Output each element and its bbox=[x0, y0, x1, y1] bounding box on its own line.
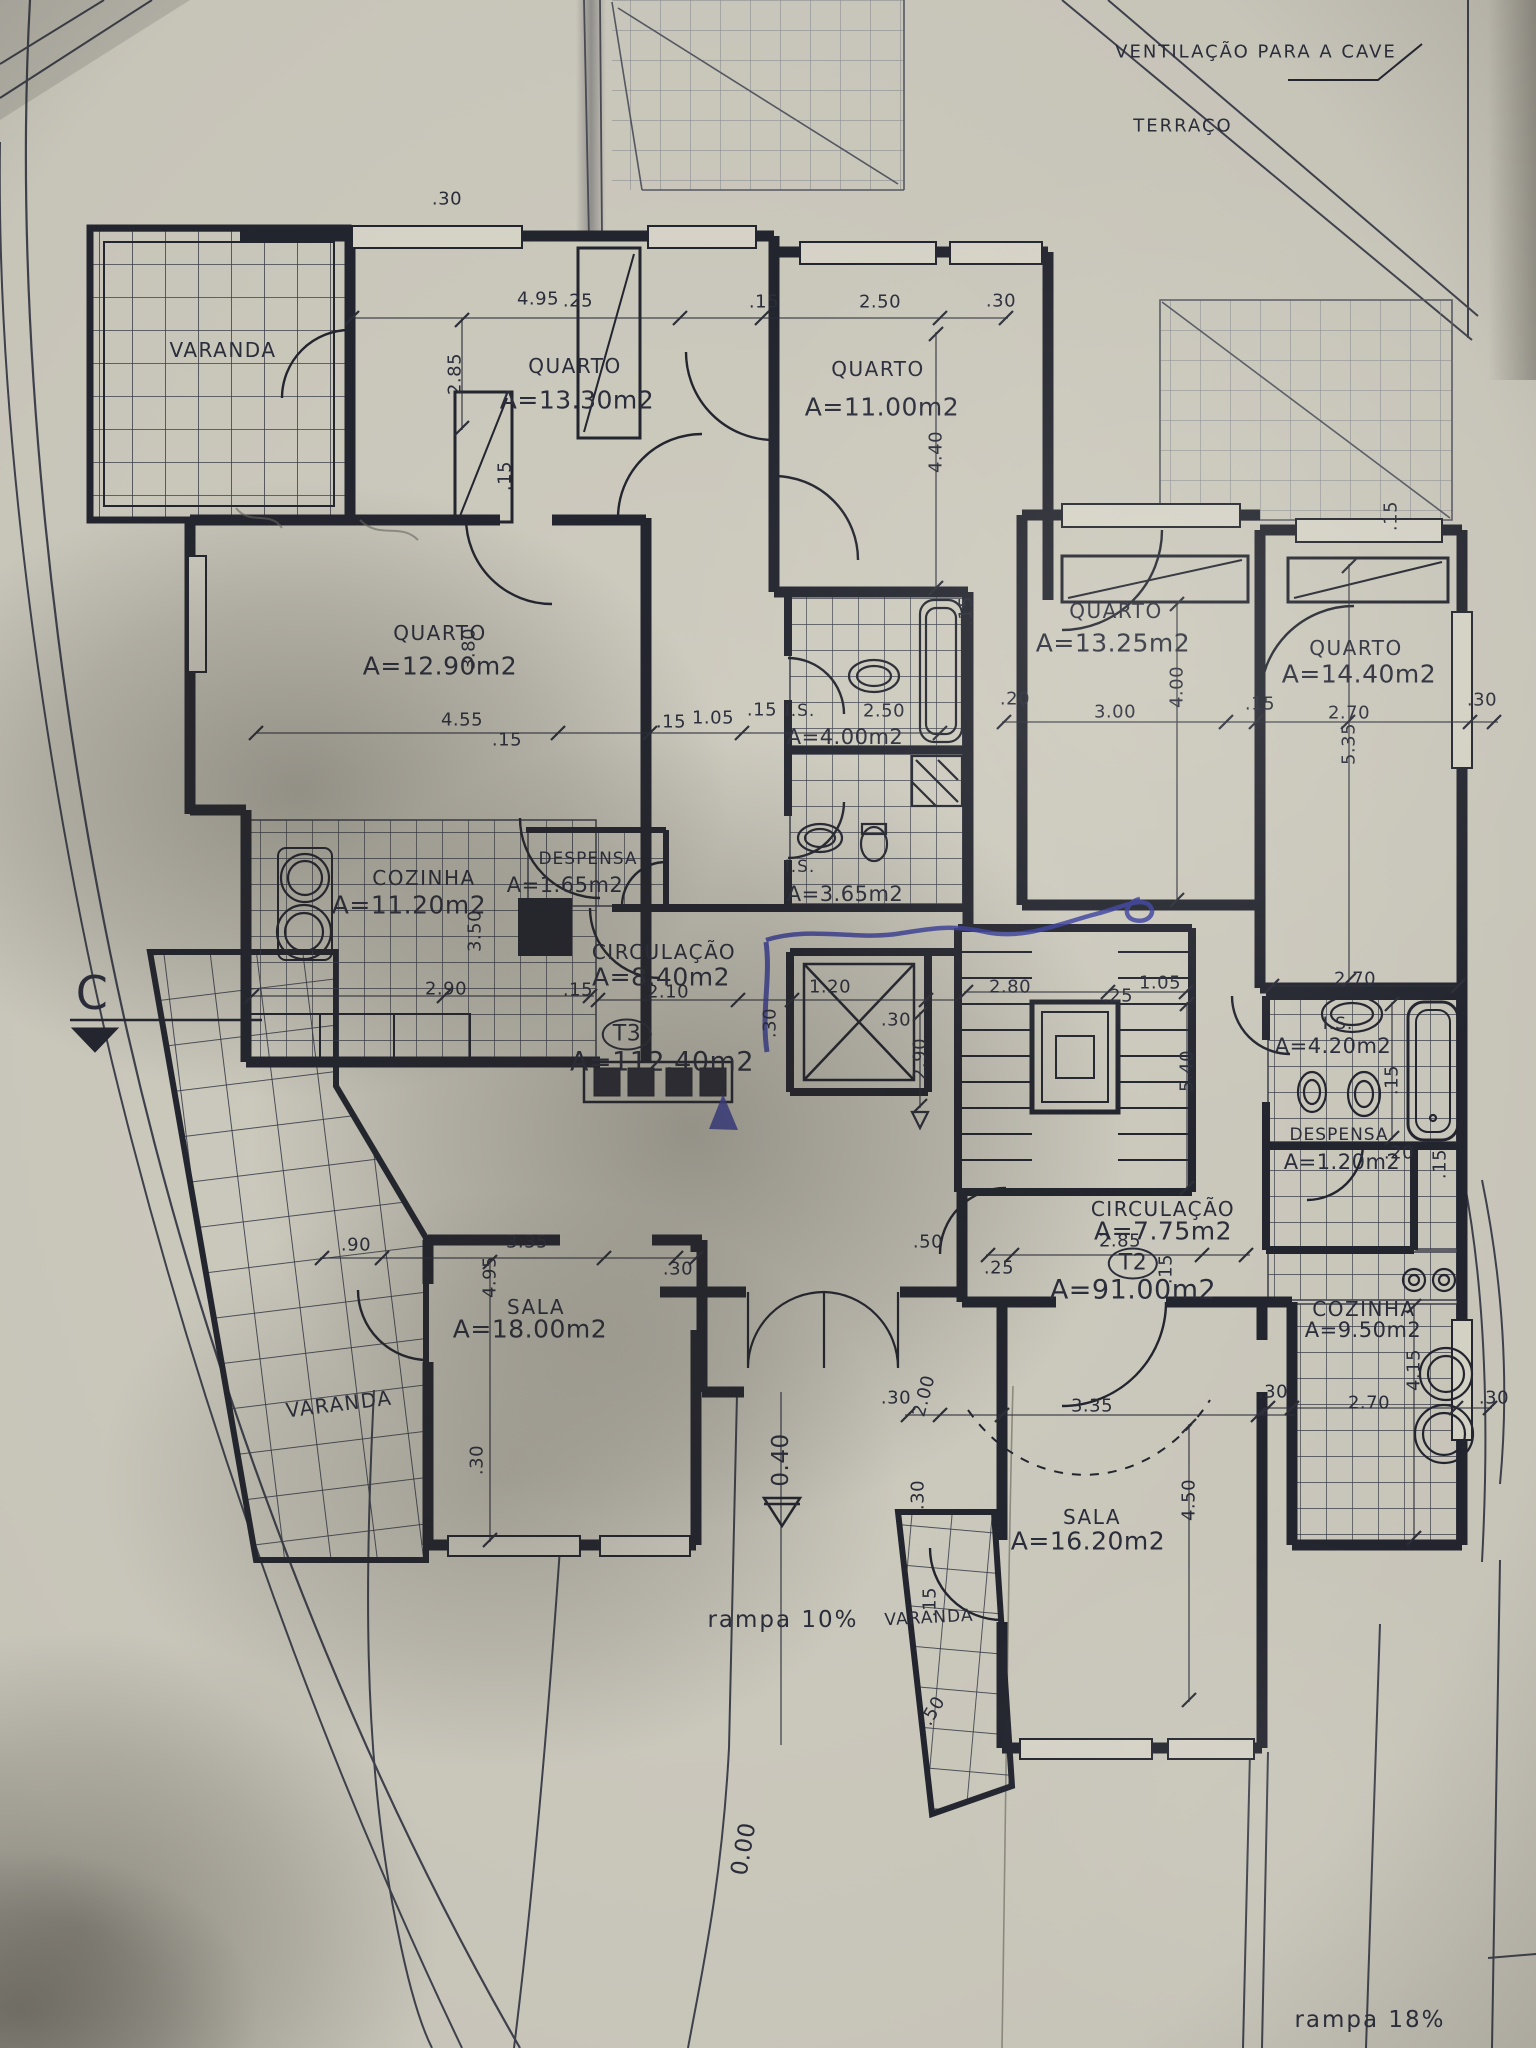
room-label-despensa-165: DESPENSA bbox=[538, 849, 637, 869]
dim-label: 4.40 bbox=[926, 431, 947, 473]
dim-label: 1.20 bbox=[809, 977, 851, 998]
dim-label: 2.90 bbox=[910, 1038, 931, 1080]
room-area-is-420: A=4.20m2 bbox=[1275, 1034, 1392, 1058]
dim-label: 4.00 bbox=[1167, 666, 1188, 708]
room-area-quarto-1440: A=14.40m2 bbox=[1282, 660, 1436, 689]
dim-label: 4.95 bbox=[480, 1256, 501, 1298]
dim-label: .15 bbox=[1381, 501, 1402, 531]
dim-label: .30 bbox=[881, 1388, 911, 1409]
dim-label: .30 bbox=[1479, 1388, 1509, 1409]
dim-label: .15 bbox=[563, 980, 593, 1001]
dim-label: 1.05 bbox=[692, 708, 734, 729]
labels-layer: VENTILAÇÃO PARA A CAVE TERRAÇO C rampa 1… bbox=[0, 0, 1536, 2048]
dim-label: .25 bbox=[563, 291, 593, 312]
dim-label: 2.70 bbox=[1328, 703, 1370, 724]
room-label-sala-1620: SALA bbox=[1063, 1505, 1121, 1529]
dim-label: .15 bbox=[492, 730, 522, 751]
room-area-cozinha-950: A=9.50m2 bbox=[1305, 1318, 1422, 1342]
dim-label: .30 bbox=[760, 1008, 781, 1038]
dim-label: .25 bbox=[984, 1258, 1014, 1279]
dim-label: 2.80 bbox=[989, 977, 1031, 998]
dim-label: .50 bbox=[913, 1232, 943, 1253]
room-label-quarto-1100: QUARTO bbox=[831, 357, 924, 381]
room-area-despensa-165: A=1.65m2 bbox=[507, 873, 624, 897]
ramp-10-note: rampa 10% bbox=[707, 1607, 858, 1633]
room-label-quarto-1325: QUARTO bbox=[1069, 599, 1162, 623]
dim-label: 2.85 bbox=[1099, 1231, 1141, 1252]
dim-label: .30 bbox=[1467, 690, 1497, 711]
dim-label: .15 bbox=[749, 292, 779, 313]
level-000: 0.00 bbox=[727, 1821, 762, 1878]
room-label-is-420: I.S. bbox=[1323, 1014, 1354, 1034]
ventilation-note: VENTILAÇÃO PARA A CAVE bbox=[1115, 42, 1397, 63]
dim-label: .30 bbox=[432, 189, 462, 210]
blueprint-photo: VENTILAÇÃO PARA A CAVE TERRAÇO C rampa 1… bbox=[0, 0, 1536, 2048]
room-area-sala-1620: A=16.20m2 bbox=[1011, 1527, 1165, 1556]
dim-label: 5.35 bbox=[1339, 723, 1360, 765]
room-area-quarto-1100: A=11.00m2 bbox=[805, 393, 959, 422]
dim-label: 2.85 bbox=[445, 353, 466, 395]
dim-label: .50 bbox=[916, 1693, 949, 1730]
dim-label: .25 bbox=[1103, 986, 1133, 1007]
dim-label: .15 bbox=[1382, 1065, 1403, 1095]
dim-label: .30 bbox=[467, 1445, 488, 1475]
dim-label: 5.40 bbox=[1177, 1050, 1198, 1092]
dim-label: 3.00 bbox=[1094, 702, 1136, 723]
unit-area-t3: A=112.40m2 bbox=[570, 1047, 754, 1078]
room-area-despensa-120: A=1.20m2 bbox=[1284, 1150, 1401, 1174]
room-label-is-400: I.S. bbox=[785, 701, 816, 721]
dim-label: .30 bbox=[986, 291, 1016, 312]
dim-label: .30 bbox=[881, 1010, 911, 1031]
dim-label: 2.10 bbox=[647, 982, 689, 1003]
dim-label: 3.80 bbox=[459, 628, 480, 670]
room-label-quarto-1440: QUARTO bbox=[1309, 636, 1402, 660]
unit-area-t2: A=91.00m2 bbox=[1050, 1275, 1216, 1306]
dim-label: 2.70 bbox=[1348, 1393, 1390, 1414]
dim-label: .15 bbox=[1245, 694, 1275, 715]
dim-label: 4.15 bbox=[1404, 1349, 1425, 1391]
dim-label: 2.90 bbox=[425, 979, 467, 1000]
dim-label: 4.95 bbox=[517, 289, 559, 310]
ramp-18-note: rampa 18% bbox=[1294, 2007, 1445, 2033]
room-area-is-400: A=4.00m2 bbox=[787, 725, 904, 749]
room-area-cozinha-1120: A=11.20m2 bbox=[332, 891, 486, 920]
dim-label: 2.70 bbox=[1334, 969, 1376, 990]
section-marker-c: C bbox=[76, 966, 109, 1020]
room-area-quarto-1325: A=13.25m2 bbox=[1036, 629, 1190, 658]
dim-label: 2.00 bbox=[908, 1373, 939, 1419]
level-040: 0.40 bbox=[768, 1433, 794, 1486]
dim-label: .20 bbox=[1384, 1143, 1414, 1164]
dim-label: .20 bbox=[1000, 689, 1030, 710]
dim-label: .15 bbox=[1156, 1254, 1177, 1284]
dim-label: .15 bbox=[920, 1587, 941, 1617]
unit-tag-t3: T3 bbox=[602, 1022, 652, 1047]
dim-label: 4.50 bbox=[1179, 1479, 1200, 1521]
dim-label: .30 bbox=[663, 1259, 693, 1280]
dim-label: 2.50 bbox=[863, 701, 905, 722]
unit-tag-t2: T2 bbox=[1108, 1251, 1158, 1276]
dim-label: 3.35 bbox=[506, 1232, 548, 1253]
terrace-note: TERRAÇO bbox=[1133, 116, 1232, 137]
dim-label: 1.05 bbox=[1139, 973, 1181, 994]
room-area-quarto-1290: A=12.90m2 bbox=[363, 652, 517, 681]
dim-label: 3.50 bbox=[465, 910, 486, 952]
dim-label: .90 bbox=[341, 1235, 371, 1256]
room-area-sala-1800: A=18.00m2 bbox=[453, 1315, 607, 1344]
dim-label: .30 bbox=[908, 1480, 929, 1510]
dim-label: .15 bbox=[747, 700, 777, 721]
dim-label: 2.50 bbox=[859, 292, 901, 313]
room-area-quarto-1330: A=13.30m2 bbox=[500, 386, 654, 415]
dim-label: 3.35 bbox=[1071, 1396, 1113, 1417]
room-label-cozinha-1120: COZINHA bbox=[372, 866, 476, 890]
room-label-varanda-tl: VARANDA bbox=[169, 338, 276, 362]
room-label-is-365: I.S. bbox=[785, 857, 816, 877]
dim-label: .30 bbox=[1258, 1382, 1288, 1403]
dim-label: .15 bbox=[656, 712, 686, 733]
room-label-varanda-left: VARANDA bbox=[284, 1386, 393, 1423]
room-label-circulacao-840: CIRCULAÇÃO bbox=[592, 940, 736, 964]
dim-label: 4.55 bbox=[441, 710, 483, 731]
dim-label: .15 bbox=[956, 596, 977, 626]
dim-label: .15 bbox=[495, 461, 516, 491]
room-label-quarto-1330: QUARTO bbox=[528, 354, 621, 378]
dim-label: .15 bbox=[1430, 1149, 1451, 1179]
room-label-despensa-120: DESPENSA bbox=[1289, 1125, 1388, 1145]
room-area-is-365: A=3.65m2 bbox=[787, 882, 904, 906]
